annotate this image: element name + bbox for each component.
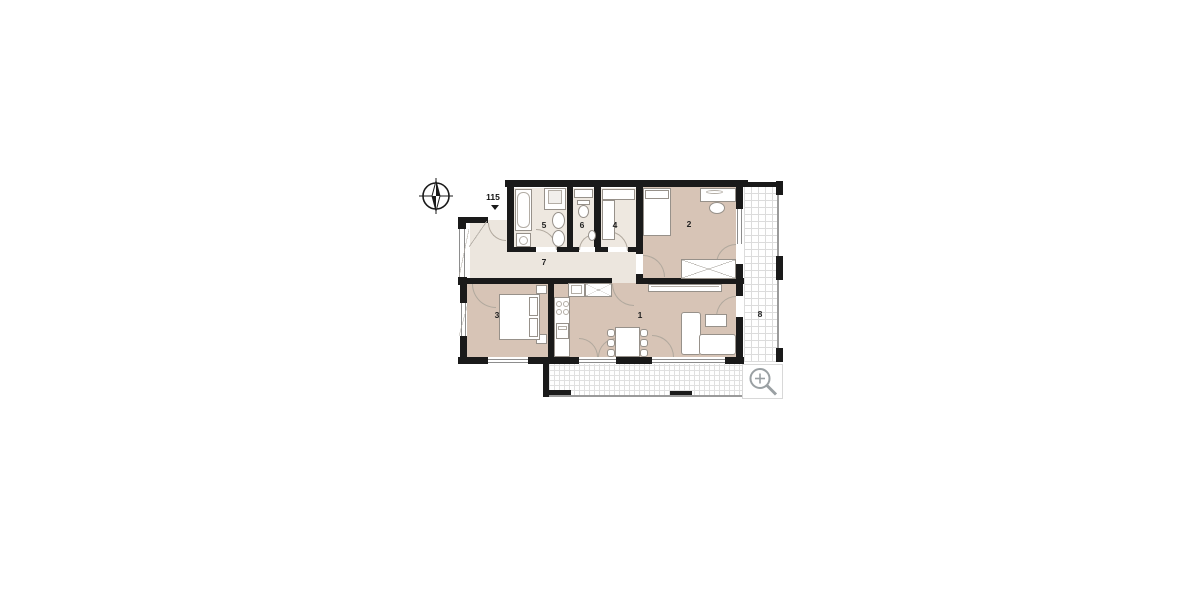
- nightstand: [536, 285, 547, 294]
- window-bedroom2-bottom: [488, 359, 528, 363]
- wall-right-d: [736, 317, 743, 364]
- terrace-railing: [549, 395, 744, 397]
- room-hallway: [508, 252, 636, 278]
- entry-closet-icon: [469, 221, 487, 247]
- terrace-tiles: [549, 364, 744, 396]
- label-bedroom-main: 2: [682, 219, 696, 229]
- label-walk-in-closet: 4: [608, 220, 622, 230]
- wall-bottom-a: [458, 357, 488, 364]
- balcony-tiles: [744, 186, 777, 362]
- wall-hall-c: [595, 247, 608, 252]
- wc-sink-icon: [588, 230, 596, 241]
- wall-closet-bedroom: [636, 186, 643, 254]
- label-wc: 6: [575, 220, 589, 230]
- wall-top: [505, 180, 748, 187]
- dining-chair: [640, 349, 648, 357]
- toilet-icon: [578, 205, 589, 218]
- wall-bottom-b: [528, 357, 554, 364]
- desk-shelf: [706, 190, 723, 194]
- bed-second-pillow: [529, 297, 538, 316]
- kitchen-sink-basin: [571, 285, 582, 294]
- cooktop-burner: [563, 309, 569, 315]
- wall-hall-a: [510, 247, 536, 252]
- label-bathroom: 5: [537, 220, 551, 230]
- compass-icon: [414, 174, 458, 218]
- balcony-pillar-mid: [776, 256, 783, 280]
- sink-icon: [552, 212, 565, 229]
- dining-chair: [640, 339, 648, 347]
- wall-hall-d: [628, 247, 636, 252]
- wall-bedroom2-left: [460, 283, 467, 303]
- balcony-pillar-bottom: [776, 348, 783, 362]
- wardrobe-bedroom-main: [681, 259, 736, 279]
- wall-bath-left: [507, 186, 514, 252]
- wall-bottom-c: [554, 357, 579, 364]
- wall-right-a: [736, 186, 743, 209]
- wardrobe-top: [602, 189, 635, 200]
- label-bedroom-second: 3: [490, 310, 504, 320]
- sofa-arm: [681, 312, 701, 355]
- label-living-room: 1: [633, 310, 647, 320]
- terrace-door-glazing-1: [579, 359, 616, 363]
- entrance-marker-icon: [491, 205, 499, 210]
- label-hallway: 7: [537, 257, 551, 267]
- bed-second-pillow: [529, 318, 538, 337]
- window-bedroom-main: [737, 209, 742, 244]
- desk-chair: [709, 202, 725, 214]
- wall-bath-wc: [567, 186, 573, 247]
- sofa: [699, 334, 736, 355]
- cooktop-burner: [556, 309, 562, 315]
- magnifier-icon: [747, 367, 779, 396]
- dining-chair: [640, 329, 648, 337]
- balcony-pillar-top: [776, 181, 783, 195]
- washing-machine-drum: [519, 236, 528, 245]
- window-bedroom2-casement: [459, 303, 468, 336]
- dining-chair: [607, 329, 615, 337]
- window-hall-casement: [459, 229, 469, 277]
- label-balcony: 8: [753, 309, 767, 319]
- shower-tray: [548, 190, 562, 204]
- wall-right-c: [736, 283, 743, 296]
- cooktop-burner: [563, 301, 569, 307]
- bathtub-basin: [517, 192, 530, 228]
- wall-hall-b: [557, 247, 579, 252]
- coffee-table: [705, 314, 727, 327]
- wc-shelf: [574, 189, 593, 198]
- dining-chair: [607, 339, 615, 347]
- sideboard-line: [651, 286, 719, 289]
- oven-door: [558, 326, 567, 330]
- wall-left-upper: [458, 217, 466, 229]
- cooktop-burner: [556, 301, 562, 307]
- bed-main-pillow: [645, 190, 669, 199]
- terrace-door-glazing-2: [652, 359, 725, 363]
- zoom-button[interactable]: [742, 364, 783, 399]
- floor-plan-canvas: 115: [0, 0, 1200, 600]
- wall-bottom-d: [616, 357, 652, 364]
- dining-table: [615, 327, 640, 357]
- sink-icon: [552, 230, 565, 247]
- dining-chair: [607, 349, 615, 357]
- kitchen-cabinet: [585, 283, 612, 297]
- unit-number-label: 115: [481, 193, 505, 202]
